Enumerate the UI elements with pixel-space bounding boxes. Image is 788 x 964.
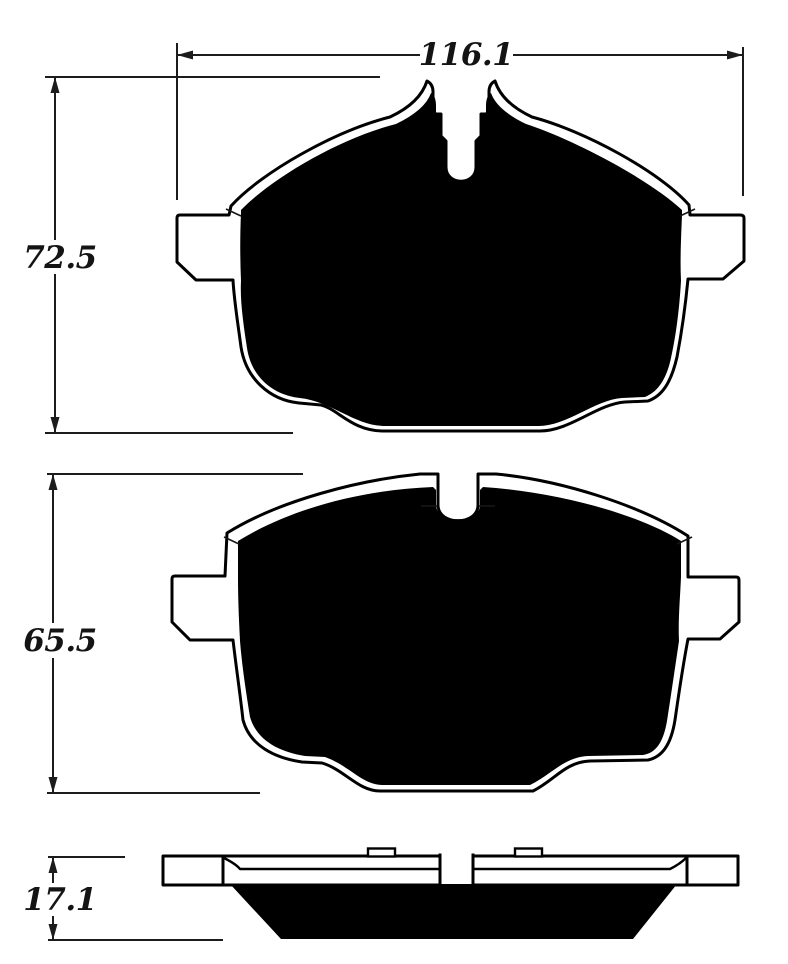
dimension-width-116: 116.1 [177,37,743,200]
arrowhead-left-icon [177,51,193,60]
dimension-label-height-top: 72.5 [23,240,97,276]
pad-side-view [163,849,738,940]
arrowhead-up-icon [49,857,58,873]
brake-pad-technical-drawing: 116.1 72.5 65.5 [0,0,788,964]
pad1-friction-material [240,93,682,426]
dimension-label-height-middle: 65.5 [23,623,97,659]
arrowhead-down-icon [49,777,58,793]
side-friction-material [230,884,677,939]
side-clip-tab-right [515,849,542,857]
arrowhead-up-icon [49,474,58,490]
arrowhead-right-icon [727,51,743,60]
pad-front-view-2 [172,474,739,791]
pad2-friction-material [238,487,681,785]
pad-front-view-1 [177,81,744,431]
arrowhead-down-icon [49,924,58,940]
arrowhead-down-icon [51,417,60,433]
arrowhead-up-icon [51,77,60,93]
dimension-label-width: 116.1 [419,37,514,73]
side-clip-tab-left [368,849,395,857]
drawing-canvas: 116.1 72.5 65.5 [0,0,788,964]
side-center-slot [442,853,472,884]
dimension-label-thickness: 17.1 [23,882,97,918]
